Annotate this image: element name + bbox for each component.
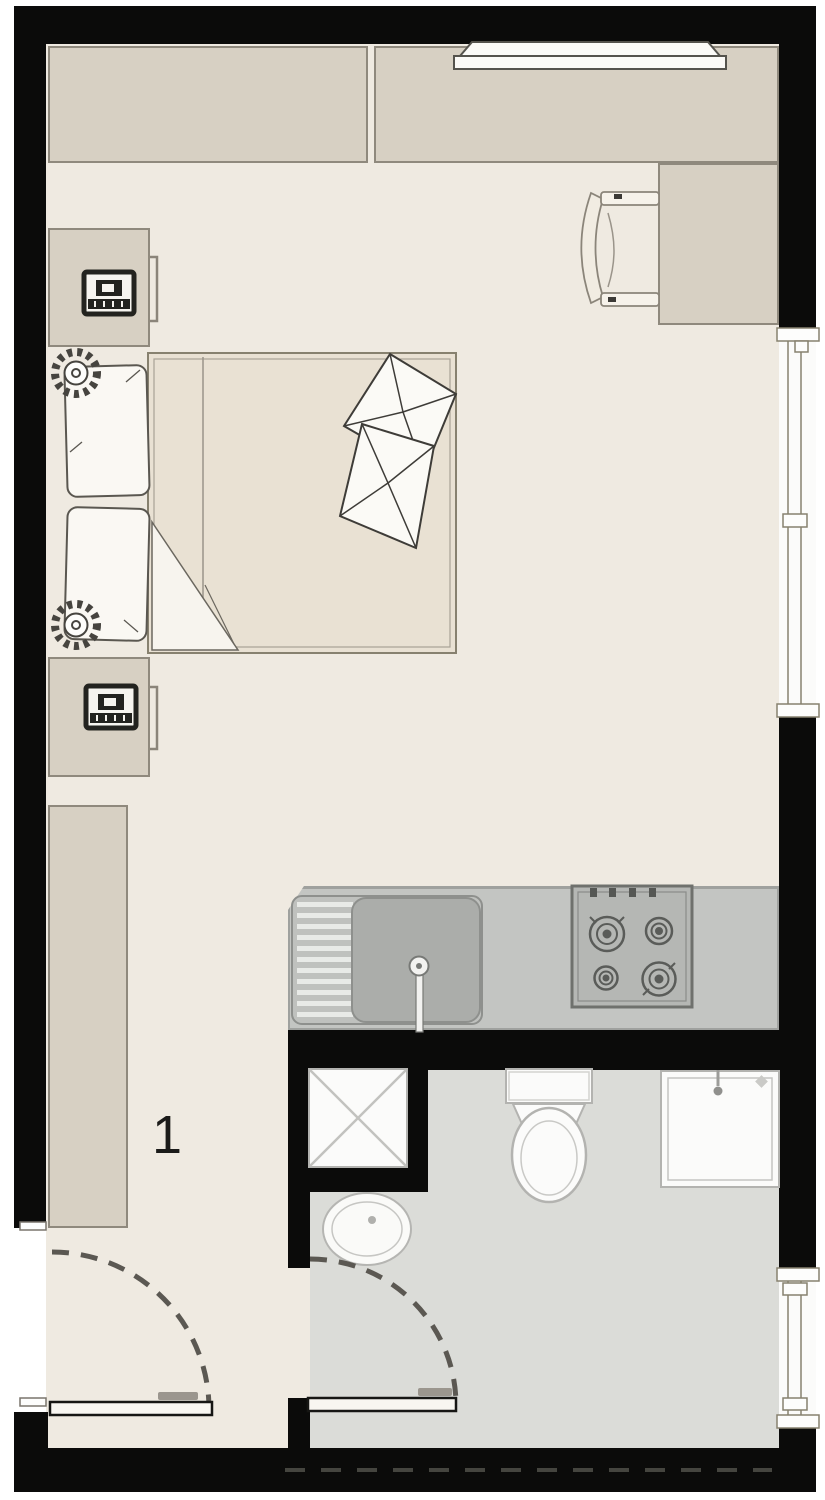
toilet-tank [505, 1068, 593, 1104]
wall-top [14, 6, 816, 44]
wall-right-upper [779, 6, 816, 328]
window-right-upper-glass [779, 328, 816, 717]
desk [658, 163, 779, 325]
closet-left [48, 805, 128, 1228]
nightstand-top [48, 228, 150, 347]
wall-right-lower [779, 1428, 816, 1492]
wall-bottom [14, 1448, 816, 1492]
duct-shaft [308, 1068, 408, 1168]
wall-bath-door-post [288, 1398, 310, 1452]
wardrobe-top-right [374, 46, 779, 163]
window-right-lower-glass [779, 1268, 816, 1428]
wall-left [14, 6, 46, 1228]
wall-right-middle [779, 717, 816, 1268]
nightstand-bottom [48, 657, 150, 777]
unit-number: 1 [144, 1104, 188, 1166]
kitchen-counter [288, 886, 779, 1030]
floor-plan: 1 [0, 0, 825, 1500]
shower-box [660, 1070, 780, 1188]
wardrobe-top-left [48, 46, 368, 163]
